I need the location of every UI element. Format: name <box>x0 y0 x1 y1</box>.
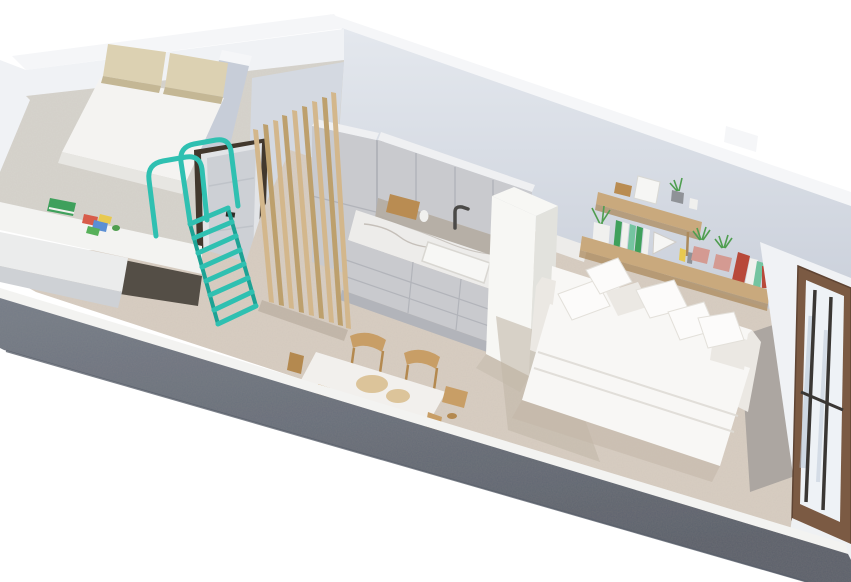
serving-bowl-1 <box>356 375 388 393</box>
chair-back-3 <box>287 352 304 374</box>
apartment-scene <box>0 0 851 582</box>
chair-knob-4 <box>447 413 457 419</box>
counter-jar <box>420 210 429 222</box>
serving-bowl-2 <box>386 389 410 403</box>
shelf-bracket <box>687 232 688 256</box>
desk-plant-dot <box>112 225 120 231</box>
shelf-vase-small <box>689 198 698 210</box>
shelf-bottle-amber <box>679 248 686 262</box>
floor-plan-render <box>0 0 851 582</box>
